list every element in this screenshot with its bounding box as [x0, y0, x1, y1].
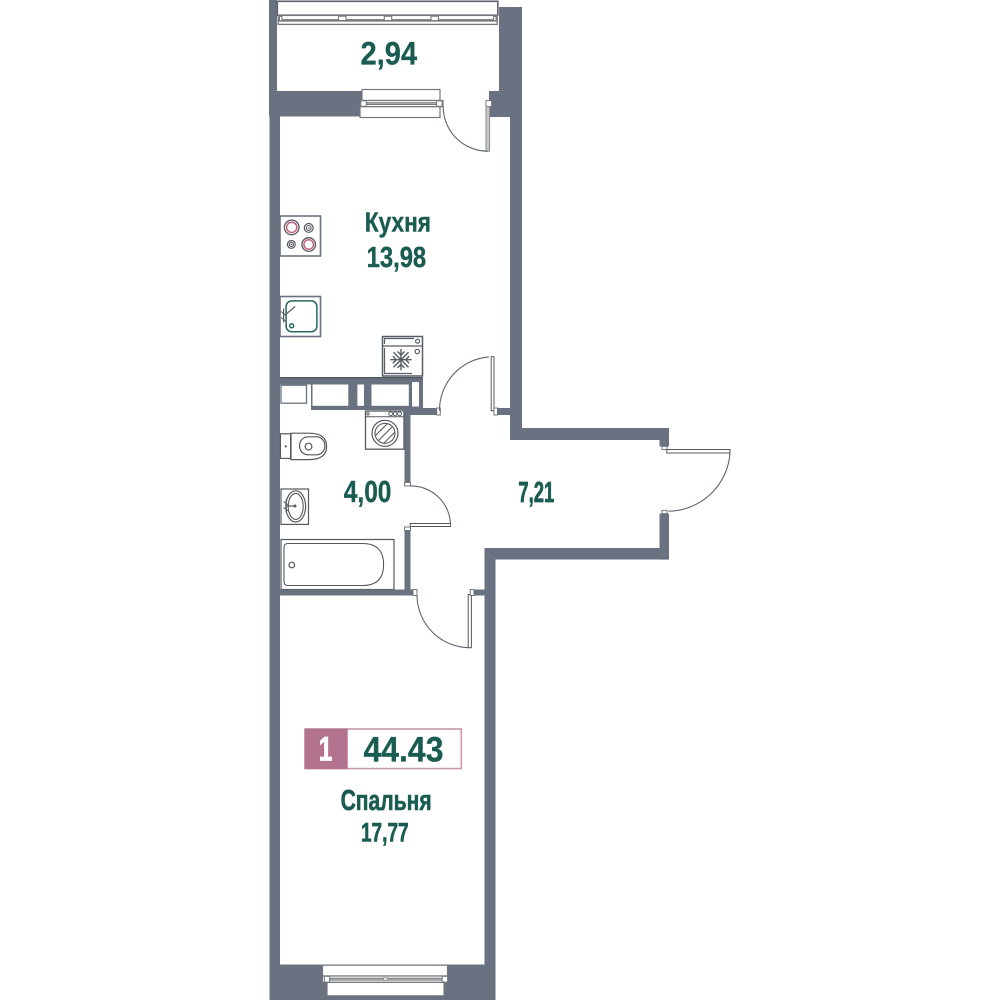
svg-text:Спальня: Спальня	[341, 785, 432, 817]
svg-text:1: 1	[319, 731, 333, 769]
svg-text:7,21: 7,21	[518, 477, 554, 509]
svg-text:4,00: 4,00	[344, 474, 392, 508]
svg-text:17,77: 17,77	[361, 817, 409, 847]
svg-text:13,98: 13,98	[367, 241, 426, 274]
svg-text:44.43: 44.43	[364, 730, 444, 770]
svg-text:2,94: 2,94	[360, 36, 417, 72]
svg-text:Кухня: Кухня	[365, 207, 431, 238]
